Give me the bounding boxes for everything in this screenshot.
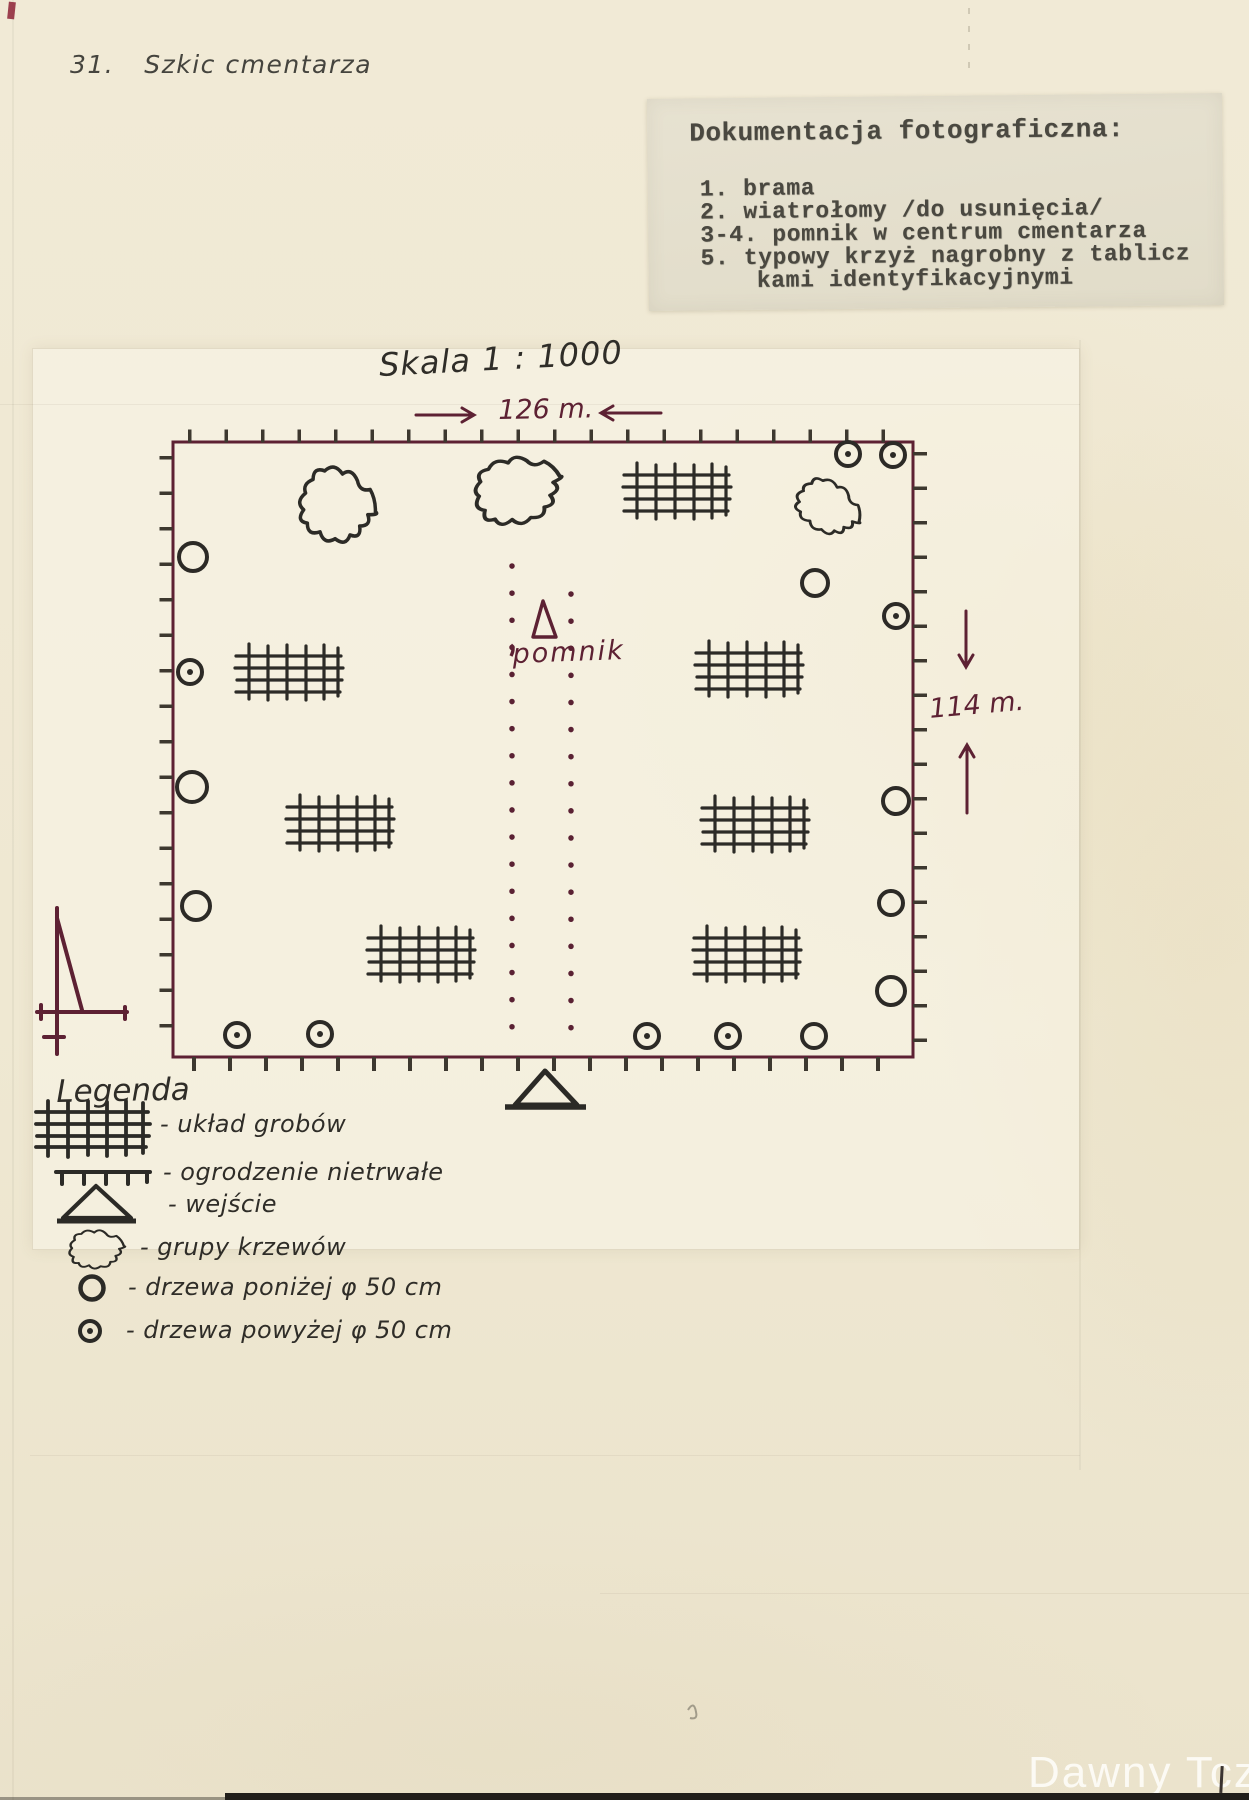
trees-below-50 [177, 543, 909, 1048]
legend-grave-grid-icon [36, 1101, 150, 1157]
pencil-squiggle [688, 1705, 696, 1718]
legend-tree-below-50-icon [81, 1277, 104, 1300]
sketch-ink-layer [0, 0, 1249, 1800]
grave-grids [235, 463, 809, 982]
scanned-document-page: 31.Szkic cmentarza Dokumentacja fotograf… [0, 0, 1249, 1800]
north-arrow [37, 908, 127, 1054]
legend-item-label: - grupy krzewów [140, 1233, 346, 1261]
legend-temporary-fence-icon [56, 1172, 150, 1184]
legend-item-label: - układ grobów [160, 1110, 346, 1138]
map-outline [173, 442, 913, 1057]
watermark: Dawny Tczew [1028, 1748, 1249, 1798]
legend-item-label: - drzewa poniżej φ 50 cm [128, 1273, 442, 1301]
monument-label: pomnik [512, 635, 625, 670]
legend-item-label: - wejście [168, 1190, 277, 1218]
legend-tree-above-50-icon [80, 1321, 100, 1341]
legend-entrance-triangle-icon [57, 1186, 136, 1221]
legend-item-label: - ogrodzenie nietrwałe [163, 1158, 444, 1186]
legend-shrub-group-icon [67, 1227, 127, 1271]
legend-item-label: - drzewa powyżej φ 50 cm [126, 1316, 452, 1344]
width-dimension-label: 126 m. [498, 393, 594, 426]
scan-bottom-edge [225, 1793, 1249, 1800]
shrub-groups [294, 444, 871, 548]
map-ticks [166, 436, 920, 1064]
legend-title: Legenda [56, 1072, 190, 1110]
entrance-triangle [505, 1071, 586, 1107]
trees-above-50 [178, 442, 908, 1048]
